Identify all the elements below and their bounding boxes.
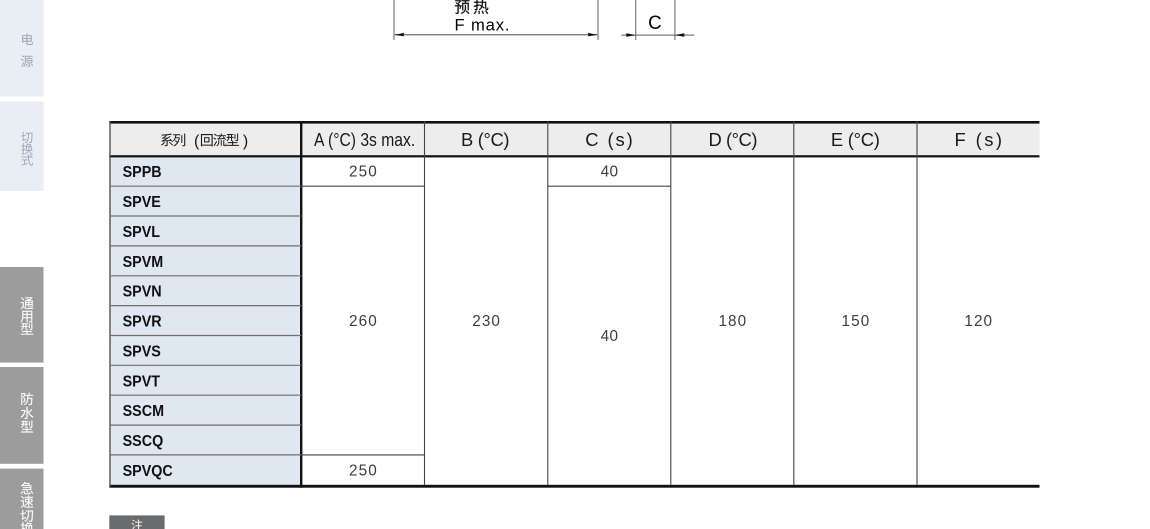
svg-text:SPVT: SPVT — [123, 373, 160, 391]
svg-text:SSCQ: SSCQ — [123, 432, 164, 450]
svg-text:): ) — [243, 133, 248, 150]
svg-text:A (°C) 3s max.: A (°C) 3s max. — [314, 130, 415, 150]
svg-text:SPVS: SPVS — [123, 343, 161, 361]
svg-text:250: 250 — [349, 164, 377, 181]
svg-text:SSCM: SSCM — [123, 403, 164, 421]
svg-text:230: 230 — [472, 313, 500, 330]
svg-text:150: 150 — [842, 313, 870, 330]
svg-text:D (°C): D (°C) — [709, 129, 758, 150]
svg-text:E (°C): E (°C) — [831, 129, 880, 150]
svg-text:SPVN: SPVN — [123, 283, 162, 301]
svg-text:SPVR: SPVR — [123, 313, 162, 331]
svg-text:(: ( — [194, 133, 200, 150]
svg-text:SPVM: SPVM — [123, 253, 164, 271]
svg-text:40: 40 — [601, 328, 618, 345]
svg-text:250: 250 — [349, 462, 377, 479]
svg-text:SPVQC: SPVQC — [123, 462, 173, 480]
svg-text:F max.: F max. — [455, 15, 510, 34]
svg-text:SPVE: SPVE — [123, 194, 161, 212]
svg-text:SPVL: SPVL — [123, 223, 160, 241]
svg-text:40: 40 — [601, 164, 618, 181]
svg-text:C: C — [648, 13, 662, 35]
svg-text:B (°C): B (°C) — [461, 129, 510, 150]
svg-text:120: 120 — [964, 313, 992, 330]
svg-text:180: 180 — [718, 313, 746, 330]
svg-text:SPPB: SPPB — [123, 164, 162, 182]
svg-text:260: 260 — [349, 313, 377, 330]
